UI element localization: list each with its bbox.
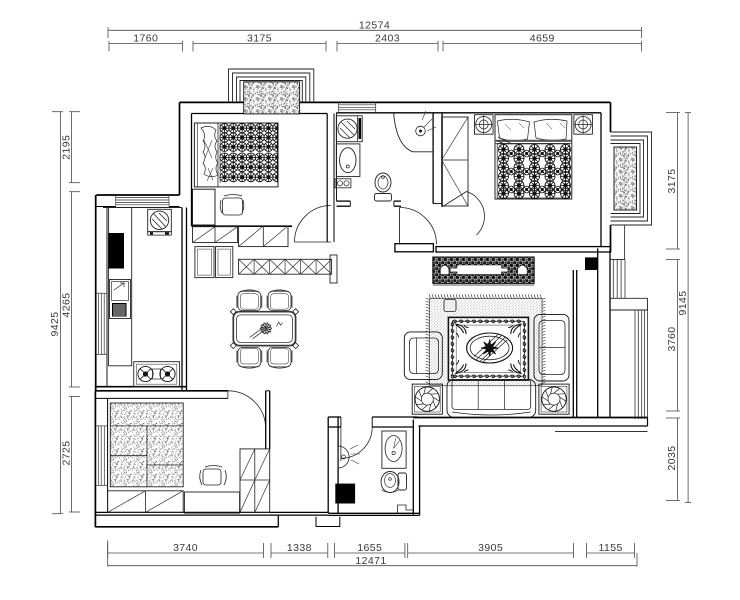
- svg-text:12574: 12574: [359, 19, 390, 31]
- svg-text:3740: 3740: [173, 542, 198, 554]
- svg-text:1338: 1338: [287, 542, 312, 554]
- svg-text:3760: 3760: [666, 327, 678, 352]
- svg-text:3905: 3905: [478, 542, 503, 554]
- svg-text:3175: 3175: [247, 33, 272, 45]
- svg-text:9425: 9425: [49, 312, 61, 337]
- svg-text:2035: 2035: [666, 446, 678, 471]
- svg-text:4265: 4265: [60, 293, 72, 318]
- svg-text:9145: 9145: [677, 291, 689, 316]
- svg-text:1655: 1655: [357, 542, 382, 554]
- svg-text:1760: 1760: [133, 33, 158, 45]
- svg-text:4659: 4659: [530, 33, 555, 45]
- svg-text:1155: 1155: [599, 542, 623, 554]
- svg-text:12471: 12471: [355, 555, 386, 567]
- svg-text:3175: 3175: [666, 169, 678, 194]
- svg-text:2403: 2403: [375, 33, 400, 45]
- svg-text:2195: 2195: [60, 135, 72, 160]
- svg-text:2725: 2725: [60, 441, 72, 466]
